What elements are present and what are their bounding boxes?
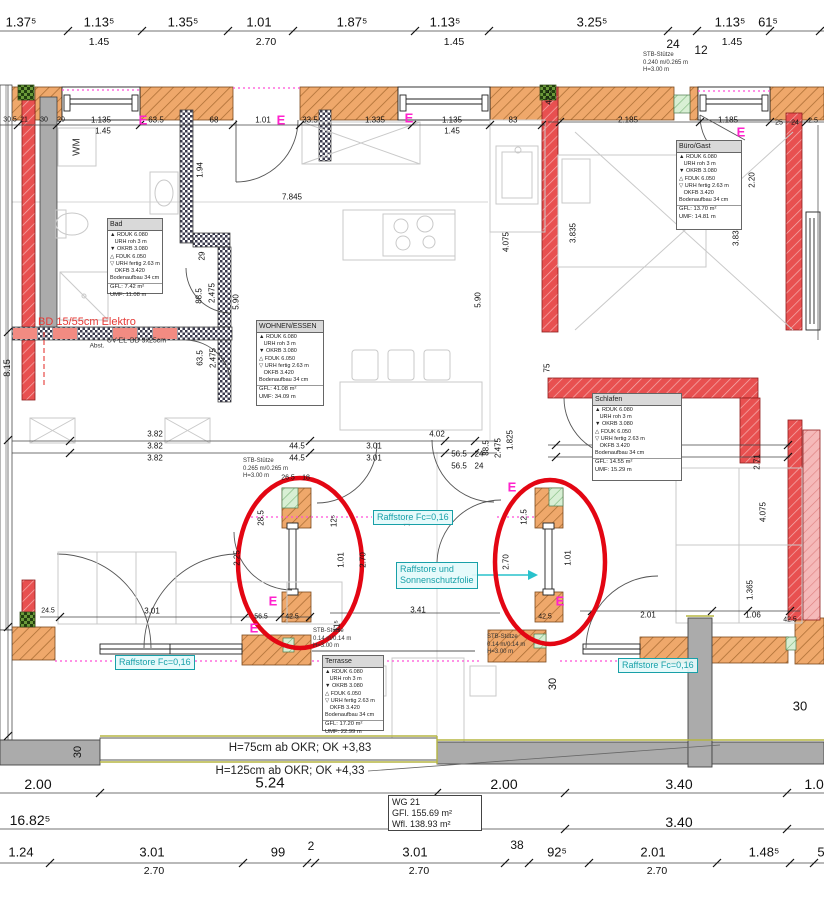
apartment-living-area: Wfl. 138.93 m² xyxy=(392,819,478,830)
concrete-columns xyxy=(22,87,820,627)
parapet-height-label-125: H=125cm ab OKR; OK +4,33 xyxy=(216,765,365,777)
floor-plan-canvas: 1.37⁵1.13⁵1.35⁵1.011.87⁵1.13⁵3.25⁵1.13⁵6… xyxy=(0,0,824,901)
apartment-id: WG 21 xyxy=(392,797,478,808)
insulation-blocks xyxy=(18,85,796,652)
exterior-walls xyxy=(0,87,824,665)
sonnenschutz-arrow xyxy=(472,570,538,580)
apartment-info-box: WG 21 GFl. 155.69 m² Wfl. 138.93 m² xyxy=(388,795,482,831)
apartment-gross-area: GFl. 155.69 m² xyxy=(392,808,478,819)
parapet-height-label-75: H=75cm ab OKR; OK +3,83 xyxy=(229,742,372,754)
floor-plan-drawing xyxy=(0,0,824,901)
raffstore-dotted-lines xyxy=(55,88,770,661)
terrace-parapet xyxy=(0,616,824,767)
